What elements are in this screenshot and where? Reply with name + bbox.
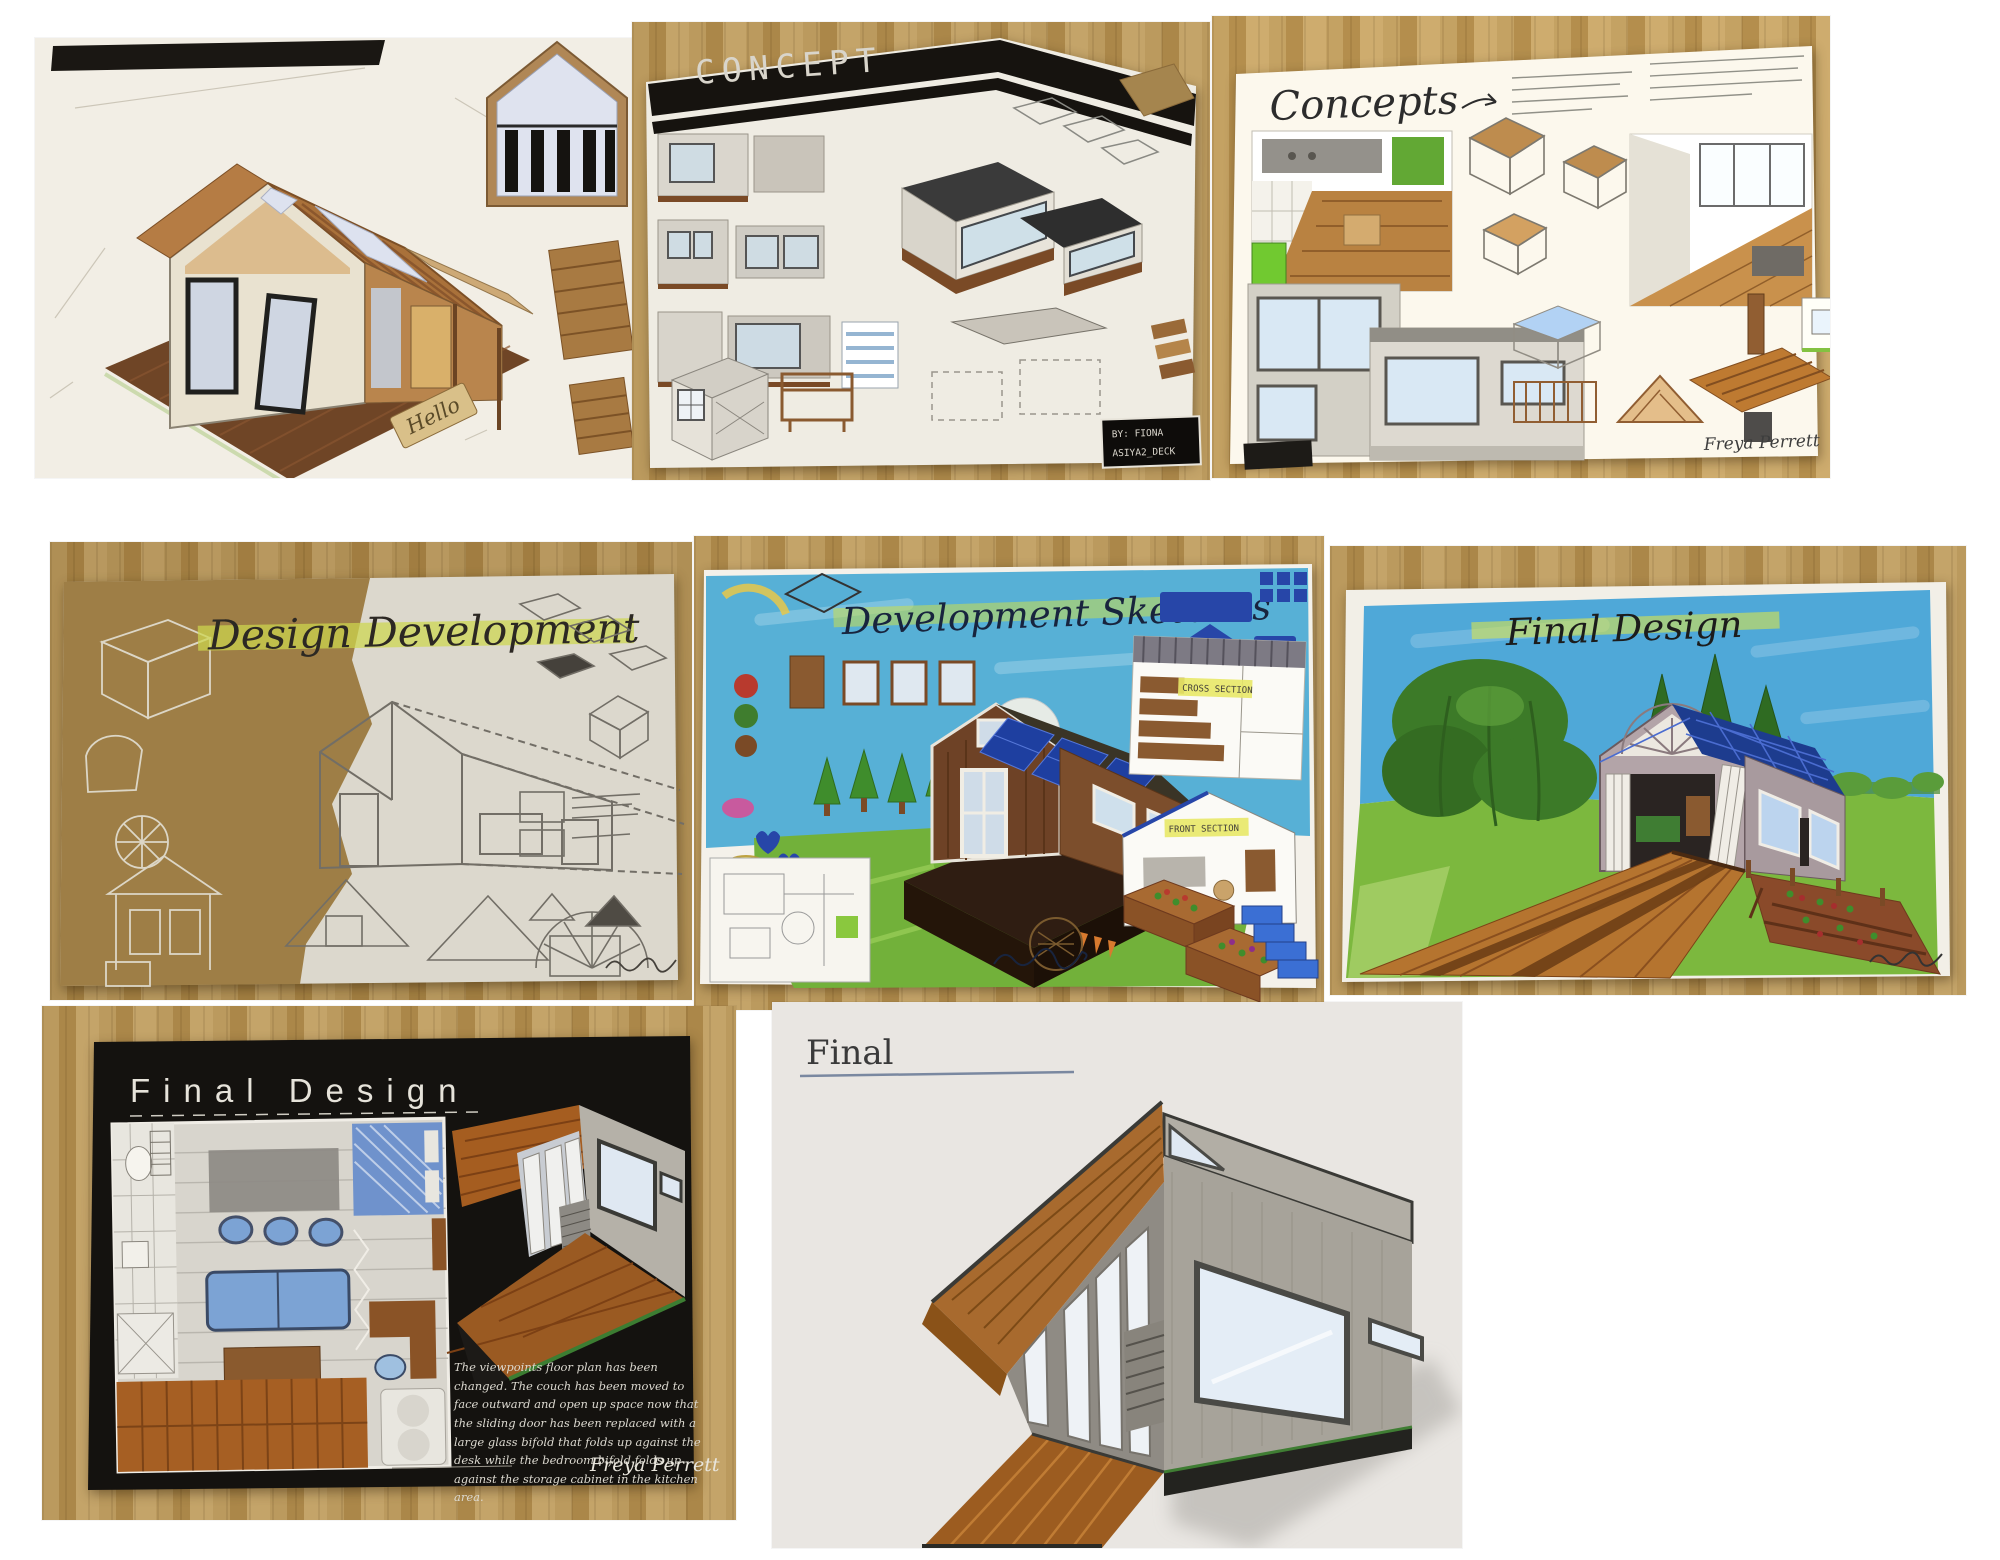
photo-design-development[interactable]: Design Development [50,542,692,1000]
collage-canvas: Hello CONCEPT [0,0,2000,1560]
photo-final-perspective[interactable]: Final [772,1002,1462,1548]
photo-development-sketches[interactable]: Development Sketches [694,536,1324,1010]
development-sketches-artwork: Development Sketches [694,536,1324,1010]
photo-title: Final Design [1504,603,1743,654]
photo-title: Final [806,1033,894,1073]
photo-title: Final Design [130,1072,469,1109]
credit-line-2: ASIYA2_DECK [1112,446,1176,459]
cross-section-panel: CROSS SECTION [1129,636,1306,780]
photo-final-design-colour[interactable]: Final Design [1330,546,1966,995]
elevation-sketches [658,134,830,387]
photo-concepts-sheet[interactable]: Concepts [1212,16,1830,478]
photo-final-design-board[interactable]: Final Design [42,1006,736,1520]
notes-paragraph: The viewpoints floor plan has been chang… [454,1358,702,1507]
credit-line-1: BY: FIONA [1112,428,1164,441]
final-perspective-artwork: Final [772,1002,1462,1548]
signature: Freya Perrett [1702,431,1820,455]
interior-perspective-sketch [1630,134,1812,306]
stools [220,1215,343,1247]
photo-title: Design Development [207,604,641,660]
floor-plan [112,1118,450,1472]
title-block: Design Development [198,604,641,660]
curtain-sketch [842,322,898,388]
concepts-artwork: Concepts [1212,16,1830,478]
signature: Freya Perrett [590,1454,719,1476]
front-section-label: FRONT SECTION [1169,824,1240,835]
photo-title: Concepts [1269,77,1459,130]
design-development-artwork: Design Development [50,542,692,1000]
interior-plan-sketch [1252,131,1452,291]
concept-artwork: CONCEPT [632,22,1210,480]
photo-cabin-isometric[interactable]: Hello [35,38,632,478]
credit-label: BY: FIONA ASIYA2_DECK [1101,416,1201,467]
floor-plan-sketch [710,858,870,982]
final-design-colour-artwork: Final Design [1330,546,1966,995]
photo-concept-sheet[interactable]: CONCEPT [632,22,1210,480]
cabin-artwork: Hello [35,38,632,478]
